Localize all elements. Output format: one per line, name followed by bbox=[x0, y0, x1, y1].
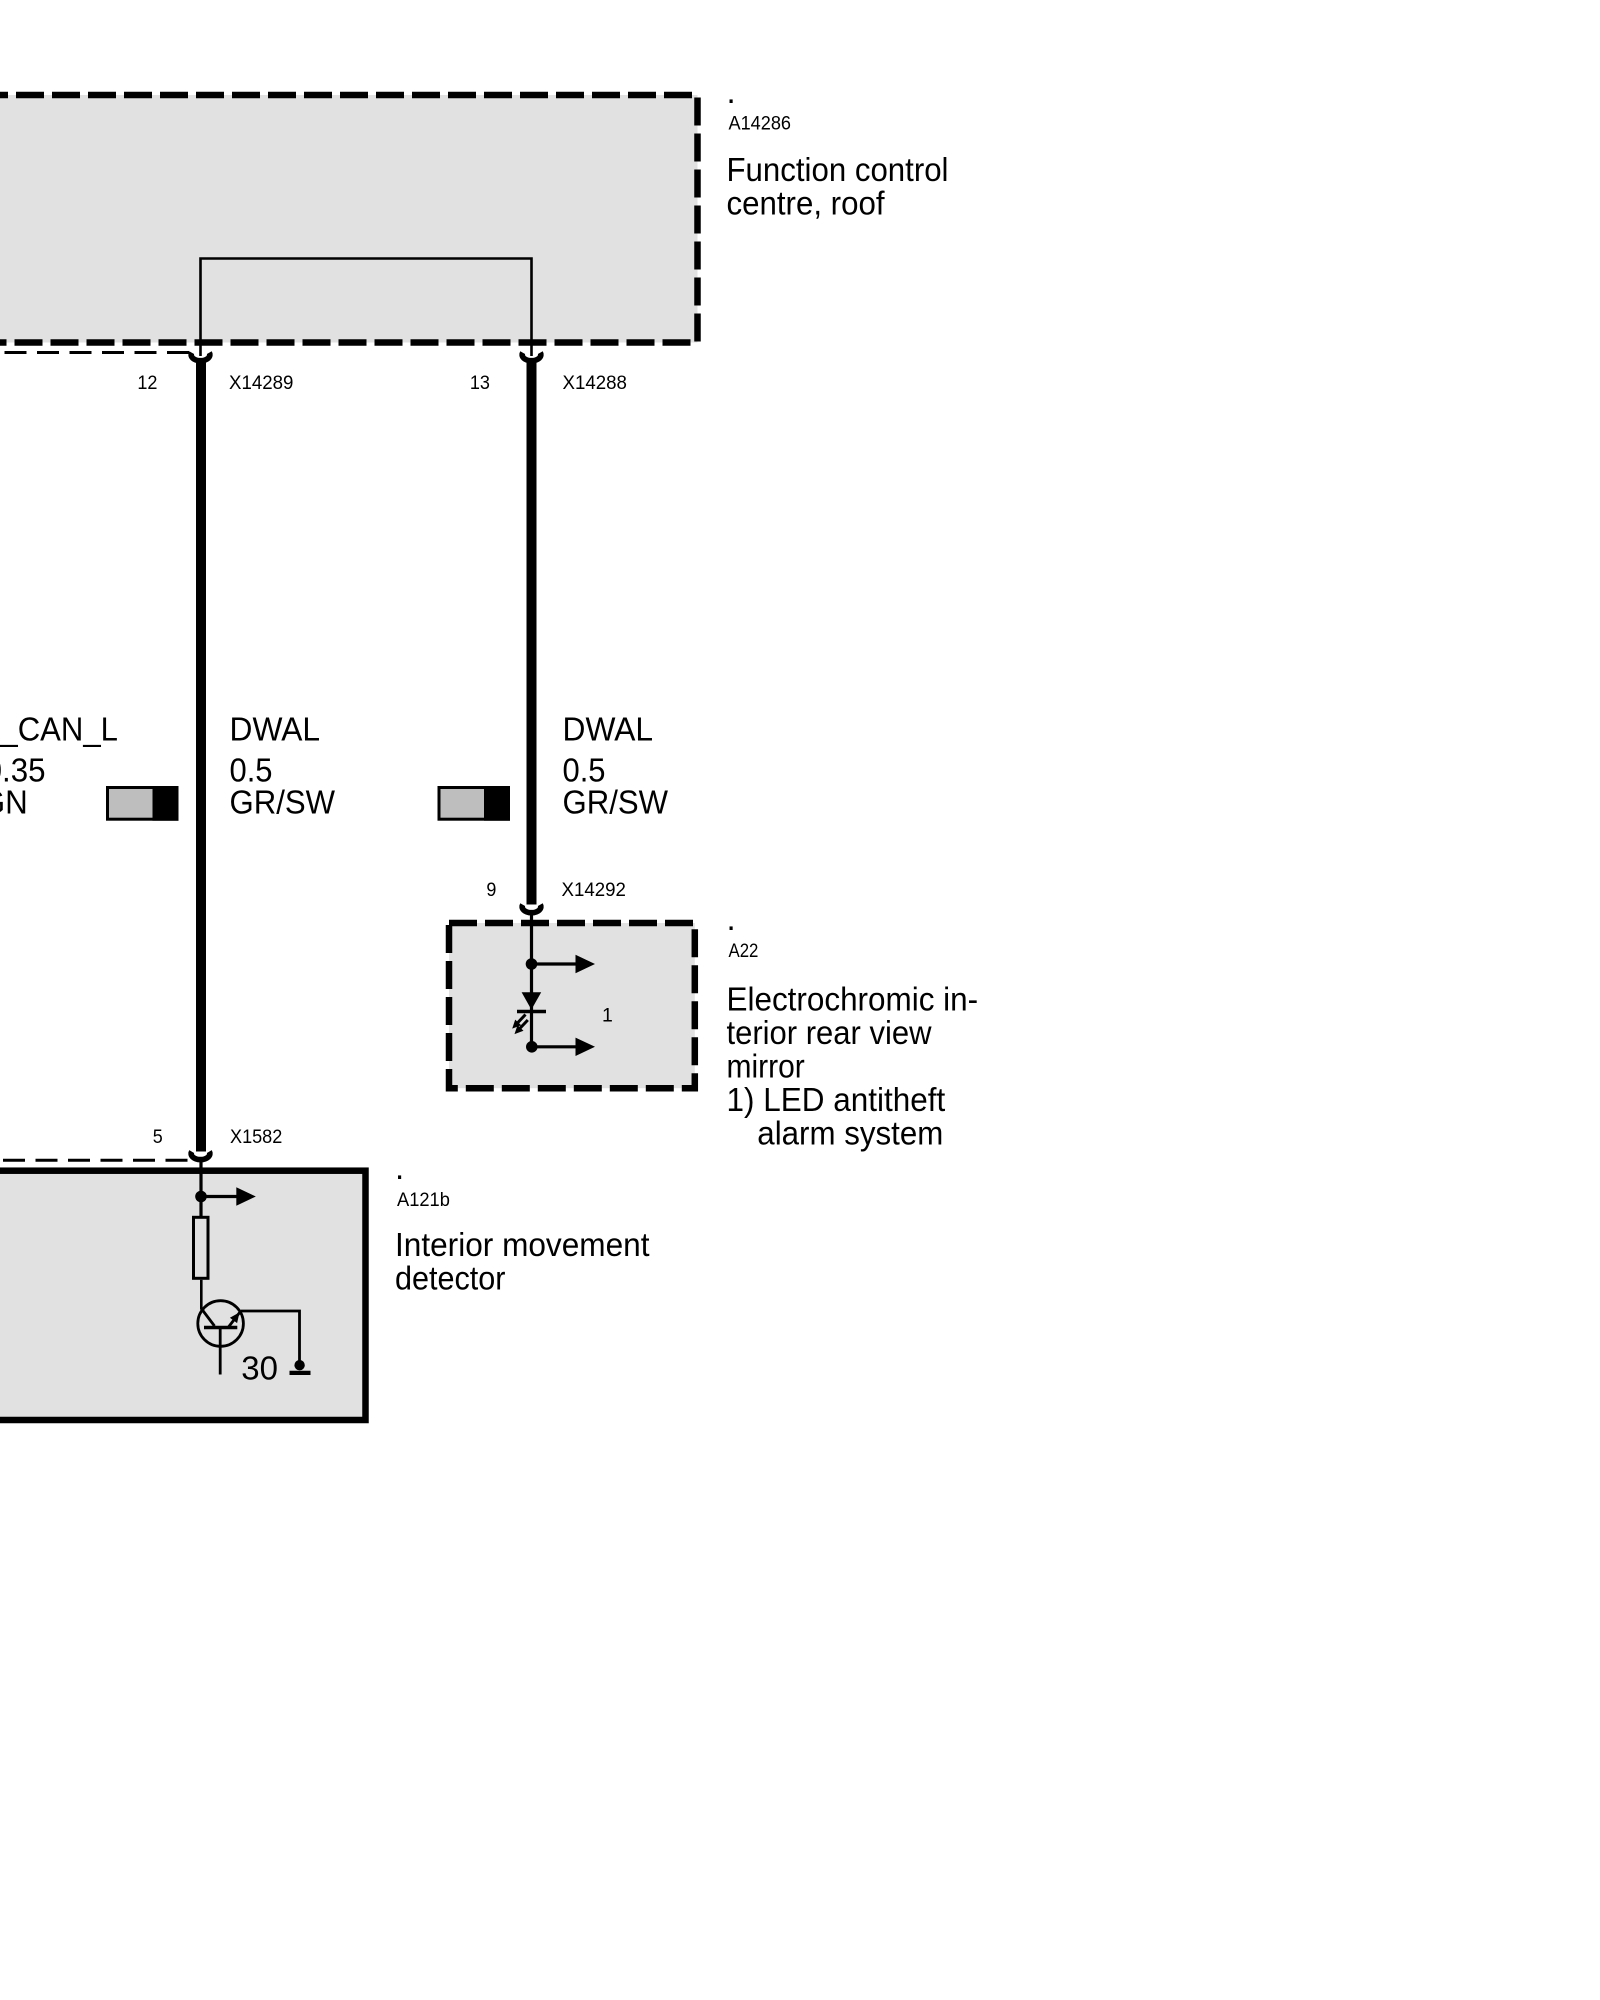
svg-text:13: 13 bbox=[470, 372, 490, 394]
svg-text:mirror: mirror bbox=[727, 1048, 805, 1085]
svg-text:GR/SW: GR/SW bbox=[563, 784, 669, 821]
svg-text:GR/SW: GR/SW bbox=[230, 784, 336, 821]
svg-text:30: 30 bbox=[241, 1349, 278, 1386]
svg-text:X14289: X14289 bbox=[229, 372, 293, 394]
svg-text:Function control: Function control bbox=[727, 151, 949, 188]
svg-text:alarm system: alarm system bbox=[757, 1115, 943, 1152]
svg-text:A121b: A121b bbox=[397, 1189, 450, 1211]
svg-text:A14286: A14286 bbox=[729, 113, 792, 135]
svg-text:A22: A22 bbox=[729, 940, 759, 962]
svg-text:.: . bbox=[727, 73, 736, 110]
svg-text:1) LED antitheft: 1) LED antitheft bbox=[727, 1081, 946, 1118]
svg-text:DWAL: DWAL bbox=[563, 711, 654, 748]
svg-text:terior rear view: terior rear view bbox=[727, 1014, 932, 1051]
svg-text:X14292: X14292 bbox=[562, 879, 626, 901]
svg-text:1: 1 bbox=[602, 1005, 613, 1027]
svg-text:Interior movement: Interior movement bbox=[395, 1226, 650, 1263]
svg-text:DWAL: DWAL bbox=[230, 711, 321, 748]
svg-text:GN: GN bbox=[0, 784, 28, 821]
svg-text:Electrochromic in-: Electrochromic in- bbox=[727, 981, 979, 1018]
svg-text:centre, roof: centre, roof bbox=[727, 185, 886, 222]
svg-text:X1582: X1582 bbox=[230, 1126, 282, 1148]
svg-text:9: 9 bbox=[486, 879, 496, 901]
svg-text:K_CAN_L: K_CAN_L bbox=[0, 711, 118, 748]
svg-text:12: 12 bbox=[137, 372, 157, 394]
svg-text:detector: detector bbox=[395, 1260, 506, 1297]
svg-text:X14288: X14288 bbox=[563, 372, 627, 394]
svg-text:.: . bbox=[727, 900, 736, 937]
svg-text:.: . bbox=[395, 1149, 404, 1186]
svg-text:5: 5 bbox=[153, 1126, 163, 1148]
